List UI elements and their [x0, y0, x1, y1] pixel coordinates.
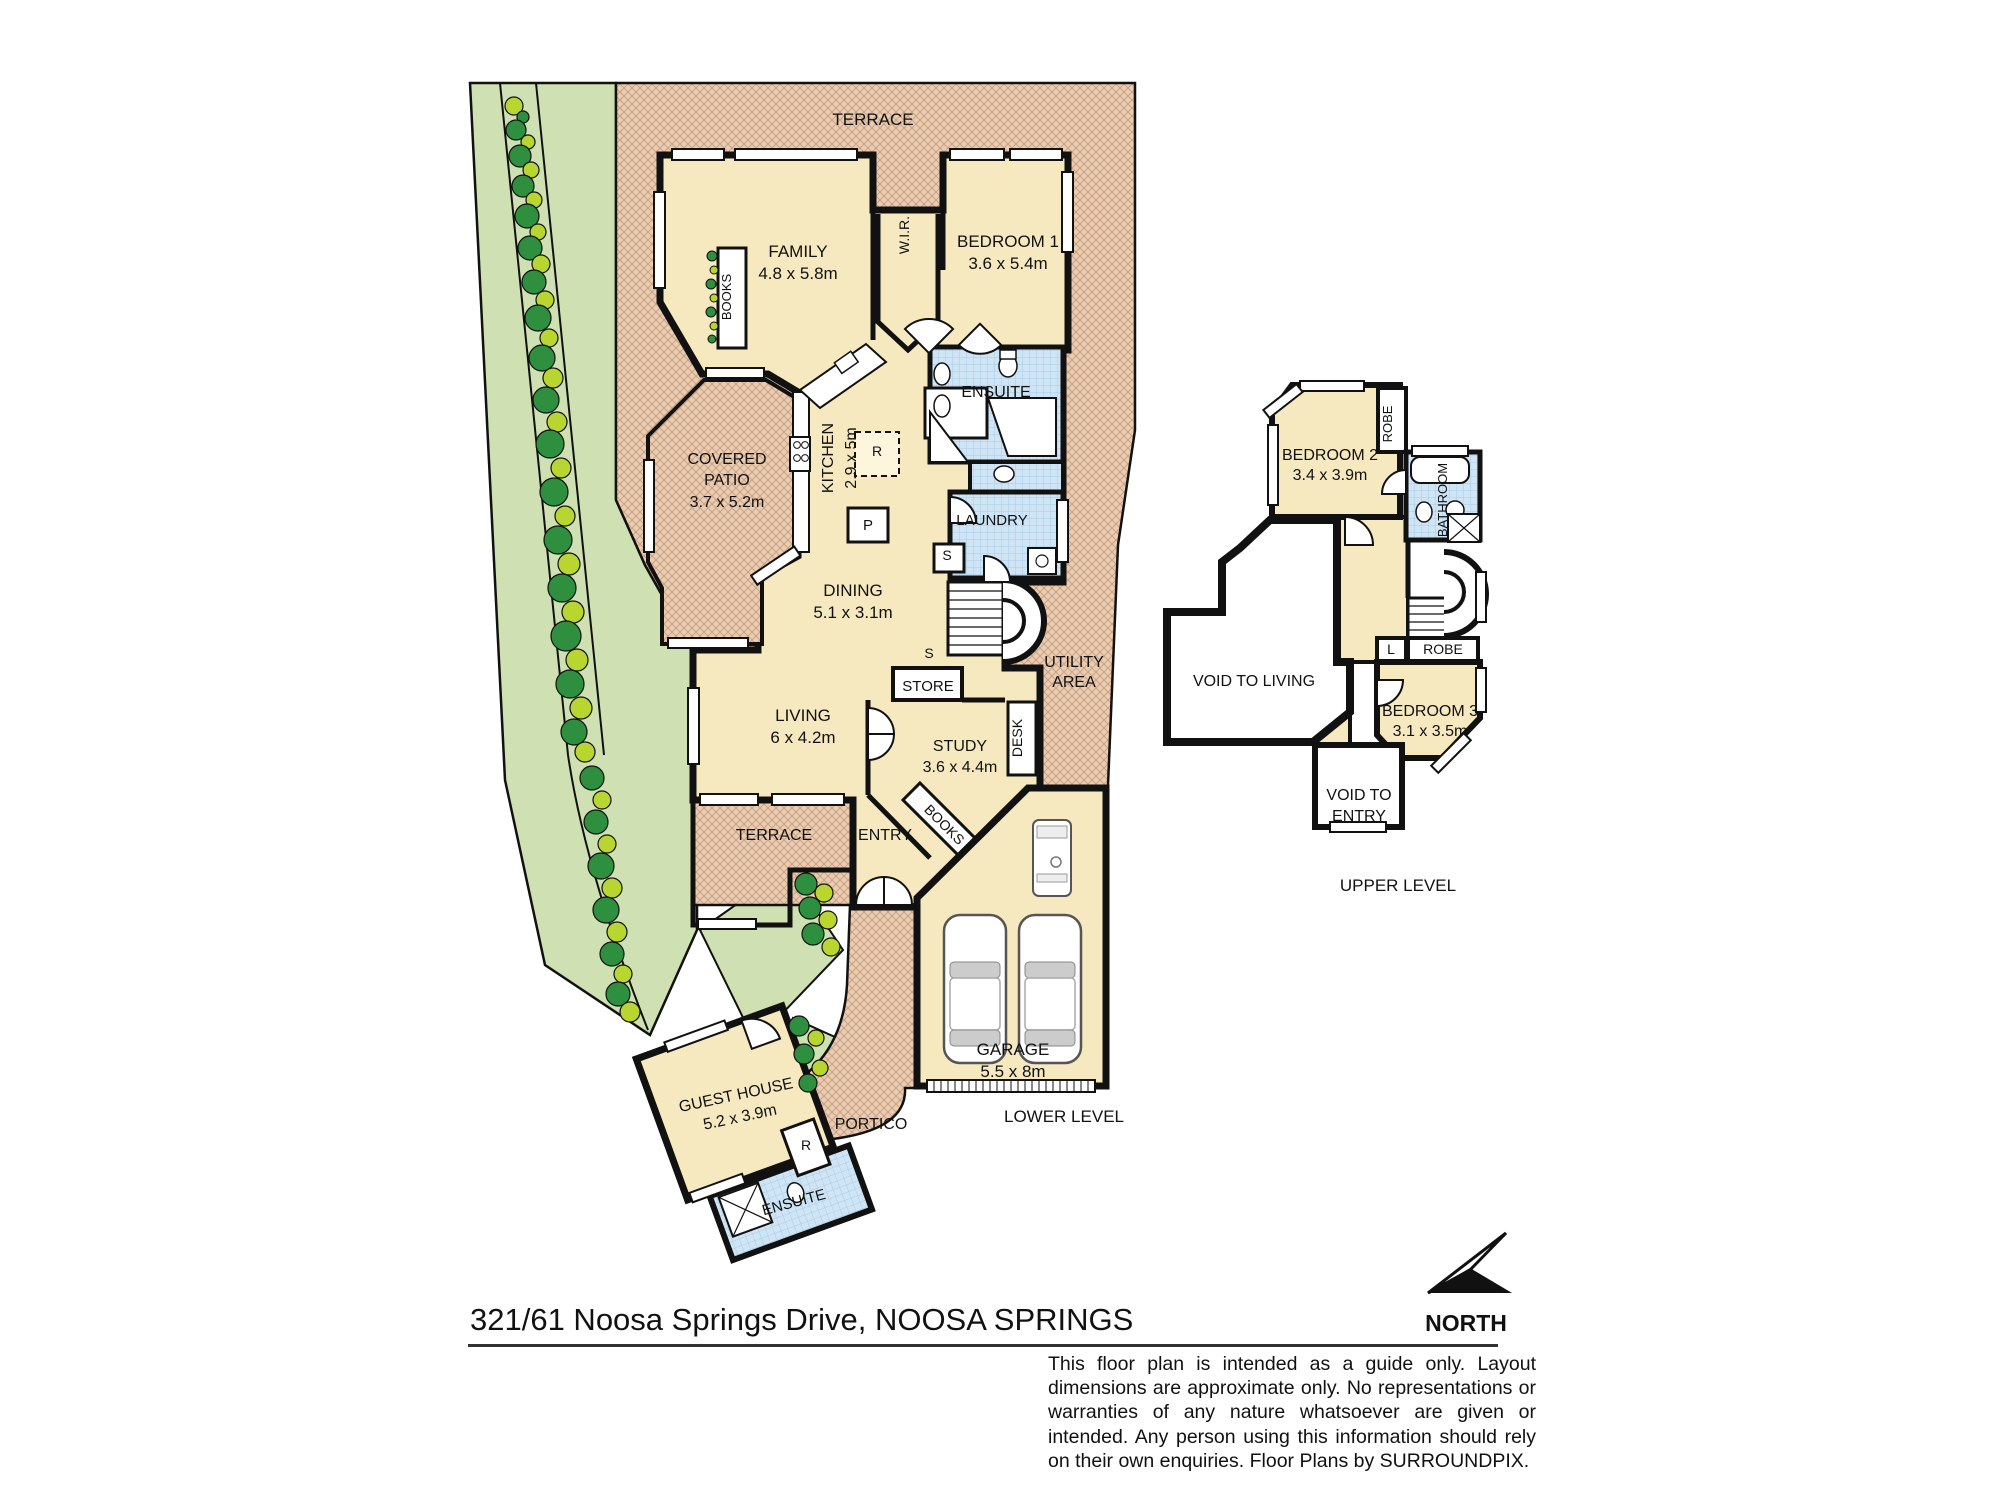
- bedroom1-label: BEDROOM 1: [957, 232, 1059, 251]
- laundry-cupboard-label: S: [942, 547, 951, 563]
- dining-dims-label: 5.1 x 3.1m: [813, 603, 892, 622]
- pantry-label: P: [863, 517, 873, 534]
- robe-lower-label: ROBE: [1423, 641, 1463, 657]
- address-title: 321/61 Noosa Springs Drive, NOOSA SPRING…: [470, 1302, 1133, 1338]
- stairs-upper: [1408, 540, 1486, 652]
- utility-1-label: UTILITY: [1044, 654, 1104, 671]
- store-label: STORE: [902, 678, 953, 695]
- bedroom2-dims-label: 3.4 x 3.9m: [1293, 467, 1368, 484]
- utility-2-label: AREA: [1052, 674, 1096, 691]
- north-arrow-icon: [1428, 1233, 1512, 1293]
- wc-toilet: [994, 466, 1014, 482]
- golf-cart: [1033, 820, 1071, 896]
- covered-patio-2-label: PATIO: [704, 472, 750, 489]
- study-label: STUDY: [933, 738, 988, 755]
- disclaimer-text: This floor plan is intended as a guide o…: [1048, 1352, 1536, 1473]
- floorplan-drawing: TERRACEFAMILY4.8 x 5.8mBOOKSW.I.R.BEDROO…: [0, 0, 2000, 1500]
- void-entry-1-label: VOID TO: [1326, 787, 1391, 804]
- laundry-tub: [1028, 548, 1056, 574]
- laundry-label: LAUNDRY: [956, 512, 1027, 529]
- bathroom-label: BATHROOM: [1435, 463, 1450, 537]
- family-dims-label: 4.8 x 5.8m: [758, 264, 837, 283]
- bedroom1-dims-label: 3.6 x 5.4m: [968, 254, 1047, 273]
- basin: [934, 363, 950, 385]
- bedroom2-label: BEDROOM 2: [1282, 447, 1378, 464]
- dining-label: DINING: [823, 581, 883, 600]
- basin: [934, 395, 950, 417]
- bedroom3-dims-label: 3.1 x 3.5m: [1393, 723, 1468, 740]
- floorplan-page: TERRACEFAMILY4.8 x 5.8mBOOKSW.I.R.BEDROO…: [0, 0, 2000, 1500]
- north-label: NORTH: [1425, 1310, 1507, 1336]
- covered-patio-dims-label: 3.7 x 5.2m: [690, 494, 765, 511]
- lower-level-label: LOWER LEVEL: [1004, 1107, 1124, 1126]
- linen-label: L: [1387, 641, 1395, 657]
- toilet: [1416, 502, 1432, 522]
- ensuite-label: ENSUITE: [961, 384, 1030, 401]
- living-dims-label: 6 x 4.2m: [770, 728, 835, 747]
- covered-patio-1-label: COVERED: [687, 451, 766, 468]
- entry-label: ENTRY: [858, 827, 912, 844]
- guest-fridge-label: R: [801, 1137, 811, 1153]
- study-dims-label: 3.6 x 4.4m: [923, 759, 998, 776]
- robe-upper-label: ROBE: [1380, 405, 1395, 442]
- bedroom3-label: BEDROOM 3: [1382, 703, 1478, 720]
- kitchen-label: KITCHEN: [820, 423, 837, 493]
- books-family-label: BOOKS: [719, 274, 734, 321]
- wir-label: W.I.R.: [896, 216, 912, 254]
- stair-storage-label: S: [924, 645, 933, 661]
- fridge-label: R: [872, 443, 882, 459]
- garage-dims-label: 5.5 x 8m: [980, 1062, 1045, 1081]
- living-label: LIVING: [775, 706, 831, 725]
- upper-level-label: UPPER LEVEL: [1340, 876, 1456, 895]
- terrace-top-label: TERRACE: [832, 110, 913, 129]
- garage-label: GARAGE: [977, 1040, 1050, 1059]
- address-divider: [468, 1344, 1498, 1347]
- void-entry-2-label: ENTRY: [1332, 808, 1386, 825]
- wc-room: [970, 462, 1063, 492]
- stairs-lower: [948, 580, 1044, 662]
- void-to-living: [1167, 520, 1350, 742]
- family-label: FAMILY: [768, 242, 827, 261]
- kitchen-dims-label: 2.9 x 5m: [843, 427, 860, 488]
- portico-label: PORTICO: [835, 1116, 908, 1133]
- desk-label: DESK: [1009, 718, 1025, 757]
- terrace-lower-label: TERRACE: [736, 827, 812, 844]
- void-living-label: VOID TO LIVING: [1193, 673, 1315, 690]
